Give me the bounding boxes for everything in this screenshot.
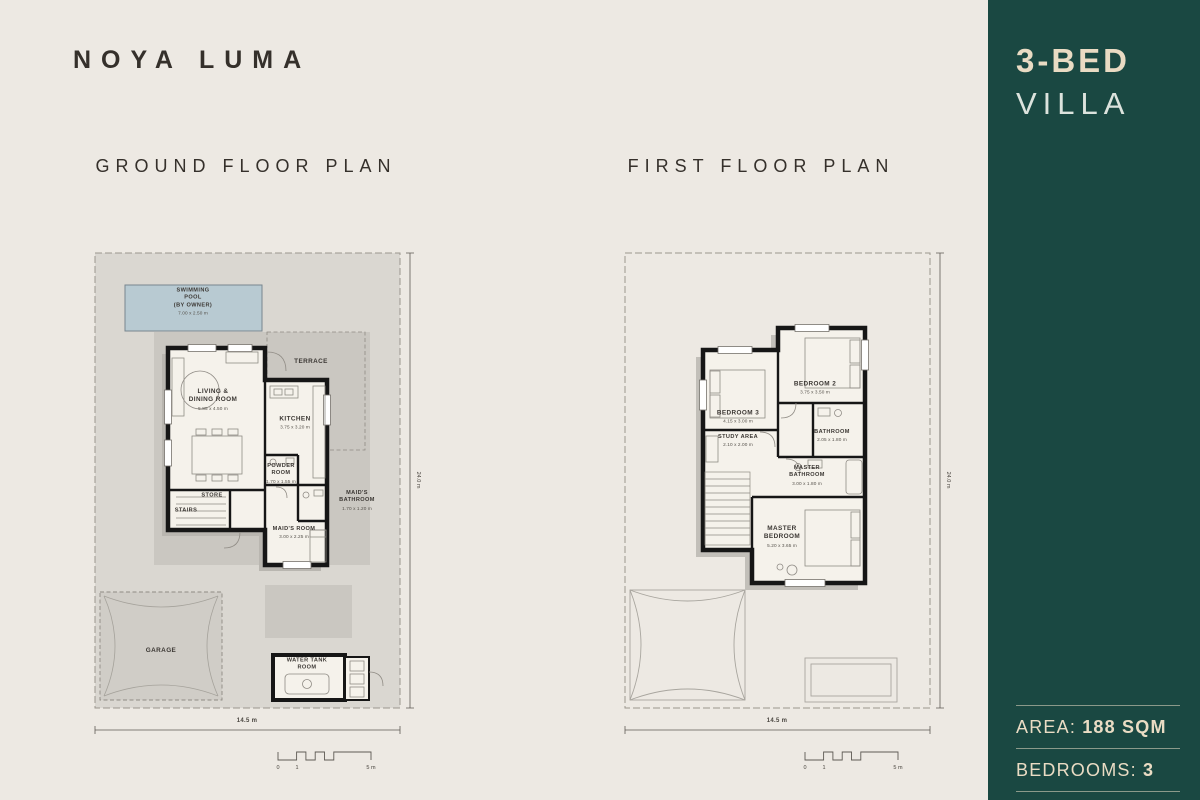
bedrooms-value: 3 <box>1143 760 1154 780</box>
area-stat: AREA: 188 SQM <box>1016 705 1180 748</box>
terrace-roof-outline <box>805 658 897 702</box>
scale-zero-label: 0 <box>276 765 279 771</box>
unit-type-heading: 3-BED <box>1016 42 1130 80</box>
first-floor-plan-title: FIRST FLOOR PLAN <box>581 156 941 177</box>
sidebar: 3-BED VILLA AREA: 188 SQM BEDROOMS: 3 <box>988 0 1200 800</box>
scale-zero-label: 0 <box>803 765 806 771</box>
garage-roof-outline <box>630 590 745 700</box>
scale-bar <box>278 752 371 760</box>
area-label: AREA: <box>1016 717 1082 737</box>
bedrooms-label: BEDROOMS: <box>1016 760 1143 780</box>
unit-stats: AREA: 188 SQM BEDROOMS: 3 <box>1016 705 1180 792</box>
scale-five-label: 5 m <box>893 765 902 771</box>
swimming-pool <box>125 285 262 331</box>
bedrooms-stat: BEDROOMS: 3 <box>1016 748 1180 792</box>
scale-bar <box>805 752 898 760</box>
page: NOYA LUMA GROUND FLOOR PLAN FIRST FLOOR … <box>0 0 1200 800</box>
first-floor-drawing <box>610 240 970 780</box>
ground-floor-plan-title: GROUND FLOOR PLAN <box>66 156 426 177</box>
scale-one-label: 1 <box>822 765 825 771</box>
garage-area <box>100 592 222 700</box>
water-tank-room <box>273 655 383 700</box>
ground-floor-plan: SWIMMING POOL (BY OWNER)7.00 x 2.50 mTER… <box>80 240 440 780</box>
scale-one-label: 1 <box>295 765 298 771</box>
ground-floor-drawing <box>80 240 440 780</box>
patio-area <box>265 585 352 638</box>
project-title: NOYA LUMA <box>73 46 311 75</box>
first-height-dimension: 24.0 m <box>945 472 951 489</box>
first-floor-plan: BEDROOM 23.75 x 3.50 mBEDROOM 34.15 x 3.… <box>610 240 970 780</box>
first-width-dimension: 14.5 m <box>767 718 787 724</box>
area-value: 188 SQM <box>1082 717 1166 737</box>
unit-kind-heading: VILLA <box>1016 86 1130 122</box>
ground-height-dimension: 24.0 m <box>415 472 421 489</box>
scale-five-label: 5 m <box>366 765 375 771</box>
ground-width-dimension: 14.5 m <box>237 718 257 724</box>
